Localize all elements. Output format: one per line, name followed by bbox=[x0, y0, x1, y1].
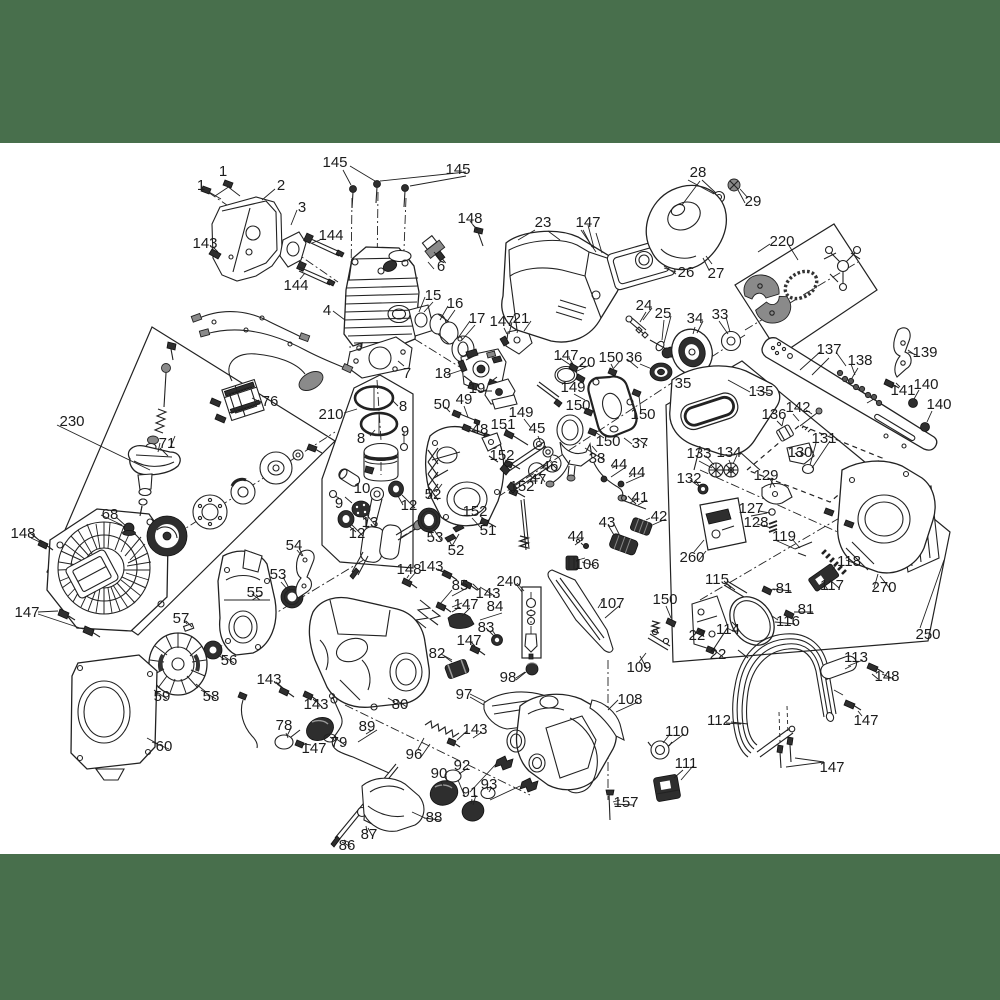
svg-text:25: 25 bbox=[655, 305, 672, 322]
svg-text:150: 150 bbox=[565, 397, 590, 414]
svg-text:2: 2 bbox=[277, 177, 285, 194]
svg-text:147: 147 bbox=[489, 313, 514, 330]
svg-text:118: 118 bbox=[837, 553, 861, 570]
svg-text:111: 111 bbox=[675, 755, 698, 772]
svg-text:58: 58 bbox=[203, 688, 220, 705]
svg-text:140: 140 bbox=[913, 376, 938, 393]
svg-text:136: 136 bbox=[761, 406, 786, 423]
svg-text:35: 35 bbox=[675, 375, 692, 392]
svg-text:54: 54 bbox=[286, 537, 303, 554]
svg-text:116: 116 bbox=[776, 613, 800, 630]
svg-text:20: 20 bbox=[579, 354, 596, 371]
svg-text:18: 18 bbox=[435, 365, 452, 382]
svg-text:88: 88 bbox=[426, 809, 443, 826]
svg-text:93: 93 bbox=[481, 776, 498, 793]
svg-text:144: 144 bbox=[283, 277, 308, 294]
svg-text:44: 44 bbox=[629, 464, 646, 481]
svg-text:53: 53 bbox=[427, 529, 444, 546]
svg-text:145: 145 bbox=[445, 161, 470, 178]
svg-text:149: 149 bbox=[508, 404, 533, 421]
svg-text:83: 83 bbox=[478, 619, 495, 636]
svg-text:9: 9 bbox=[401, 423, 409, 440]
svg-text:152: 152 bbox=[489, 447, 514, 464]
svg-text:152: 152 bbox=[462, 503, 487, 520]
svg-text:87: 87 bbox=[361, 826, 378, 843]
svg-text:113: 113 bbox=[844, 649, 868, 666]
svg-text:81: 81 bbox=[776, 580, 793, 597]
svg-text:79: 79 bbox=[331, 734, 348, 751]
svg-text:28: 28 bbox=[690, 164, 707, 181]
svg-text:82: 82 bbox=[429, 645, 446, 662]
svg-text:260: 260 bbox=[679, 549, 704, 566]
svg-text:76: 76 bbox=[262, 393, 279, 410]
svg-text:128: 128 bbox=[743, 514, 768, 531]
svg-text:98: 98 bbox=[500, 669, 517, 686]
svg-text:80: 80 bbox=[392, 696, 409, 713]
svg-text:143: 143 bbox=[303, 696, 328, 713]
svg-text:44: 44 bbox=[568, 528, 585, 545]
svg-text:29: 29 bbox=[745, 193, 762, 210]
svg-text:16: 16 bbox=[447, 295, 464, 312]
svg-text:150: 150 bbox=[598, 349, 623, 366]
svg-text:270: 270 bbox=[871, 579, 896, 596]
svg-text:8: 8 bbox=[357, 430, 365, 447]
svg-text:142: 142 bbox=[785, 399, 810, 416]
svg-text:38: 38 bbox=[589, 450, 606, 467]
svg-text:220: 220 bbox=[769, 233, 794, 250]
svg-text:140: 140 bbox=[926, 396, 951, 413]
svg-text:147: 147 bbox=[575, 214, 600, 231]
svg-text:23: 23 bbox=[535, 214, 552, 231]
svg-text:22: 22 bbox=[689, 627, 706, 644]
svg-text:90: 90 bbox=[431, 765, 448, 782]
svg-text:17: 17 bbox=[469, 310, 486, 327]
svg-text:81: 81 bbox=[798, 601, 815, 618]
svg-text:45: 45 bbox=[529, 420, 546, 437]
svg-text:144: 144 bbox=[318, 227, 343, 244]
svg-text:131: 131 bbox=[811, 430, 836, 447]
svg-text:106: 106 bbox=[574, 556, 599, 573]
svg-text:8: 8 bbox=[399, 398, 407, 415]
svg-text:97: 97 bbox=[456, 686, 473, 703]
svg-text:133: 133 bbox=[686, 445, 711, 462]
svg-text:37: 37 bbox=[632, 435, 649, 452]
svg-text:24: 24 bbox=[636, 297, 653, 314]
svg-text:60: 60 bbox=[156, 738, 173, 755]
svg-text:114: 114 bbox=[716, 621, 740, 638]
svg-text:91: 91 bbox=[462, 784, 479, 801]
svg-text:52: 52 bbox=[425, 486, 442, 503]
svg-text:12: 12 bbox=[401, 497, 418, 514]
svg-text:56: 56 bbox=[221, 652, 238, 669]
svg-text:68: 68 bbox=[102, 506, 119, 523]
svg-text:6: 6 bbox=[437, 258, 445, 275]
svg-text:143: 143 bbox=[192, 235, 217, 252]
svg-text:3: 3 bbox=[298, 199, 306, 216]
svg-text:150: 150 bbox=[630, 406, 655, 423]
svg-text:12: 12 bbox=[349, 525, 366, 542]
svg-text:135: 135 bbox=[748, 383, 773, 400]
svg-text:132: 132 bbox=[676, 470, 701, 487]
svg-text:110: 110 bbox=[665, 723, 689, 740]
svg-text:43: 43 bbox=[599, 514, 616, 531]
svg-text:147: 147 bbox=[14, 604, 39, 621]
svg-text:148: 148 bbox=[10, 525, 35, 542]
svg-text:107: 107 bbox=[599, 595, 624, 612]
svg-text:143: 143 bbox=[418, 558, 443, 575]
svg-text:41: 41 bbox=[632, 489, 649, 506]
svg-text:51: 51 bbox=[480, 522, 497, 539]
svg-text:89: 89 bbox=[359, 718, 376, 735]
svg-text:1: 1 bbox=[219, 163, 227, 180]
svg-text:150: 150 bbox=[652, 591, 677, 608]
svg-text:134: 134 bbox=[716, 444, 741, 461]
svg-text:148: 148 bbox=[457, 210, 482, 227]
svg-text:78: 78 bbox=[276, 717, 293, 734]
svg-text:117: 117 bbox=[820, 577, 844, 594]
svg-text:7: 7 bbox=[403, 365, 411, 382]
svg-text:71: 71 bbox=[159, 435, 176, 452]
svg-text:119: 119 bbox=[772, 528, 796, 545]
svg-text:49: 49 bbox=[456, 391, 473, 408]
svg-text:21: 21 bbox=[513, 310, 530, 327]
svg-text:138: 138 bbox=[847, 352, 872, 369]
svg-text:4: 4 bbox=[323, 302, 331, 319]
svg-text:137: 137 bbox=[816, 341, 841, 358]
svg-text:147: 147 bbox=[819, 759, 844, 776]
svg-text:96: 96 bbox=[406, 746, 423, 763]
svg-text:250: 250 bbox=[915, 626, 940, 643]
svg-text:108: 108 bbox=[617, 691, 642, 708]
svg-text:10: 10 bbox=[354, 480, 371, 497]
svg-text:143: 143 bbox=[256, 671, 281, 688]
svg-text:149: 149 bbox=[560, 379, 585, 396]
svg-text:150: 150 bbox=[595, 433, 620, 450]
svg-text:157: 157 bbox=[613, 794, 638, 811]
svg-text:148: 148 bbox=[874, 668, 899, 685]
svg-text:141: 141 bbox=[890, 382, 915, 399]
svg-text:147: 147 bbox=[301, 740, 326, 757]
svg-text:59: 59 bbox=[154, 688, 171, 705]
svg-text:27: 27 bbox=[708, 265, 725, 282]
svg-text:92: 92 bbox=[454, 757, 471, 774]
svg-text:53: 53 bbox=[270, 566, 287, 583]
svg-text:44: 44 bbox=[611, 456, 628, 473]
svg-text:147: 147 bbox=[553, 347, 578, 364]
svg-text:129: 129 bbox=[753, 467, 778, 484]
svg-text:130: 130 bbox=[787, 444, 812, 461]
svg-text:48: 48 bbox=[472, 421, 489, 438]
svg-text:42: 42 bbox=[651, 508, 668, 525]
svg-text:26: 26 bbox=[678, 264, 695, 281]
svg-text:36: 36 bbox=[626, 349, 643, 366]
svg-text:112: 112 bbox=[707, 712, 731, 729]
svg-text:9: 9 bbox=[335, 495, 343, 512]
svg-text:210: 210 bbox=[318, 406, 343, 423]
svg-text:55: 55 bbox=[247, 584, 264, 601]
svg-text:47: 47 bbox=[530, 471, 547, 488]
svg-text:50: 50 bbox=[434, 396, 451, 413]
svg-text:22: 22 bbox=[710, 646, 727, 663]
svg-text:57: 57 bbox=[173, 610, 190, 627]
svg-text:85: 85 bbox=[452, 577, 469, 594]
svg-text:34: 34 bbox=[687, 310, 704, 327]
svg-text:143: 143 bbox=[462, 721, 487, 738]
svg-text:230: 230 bbox=[59, 413, 84, 430]
svg-text:52: 52 bbox=[448, 542, 465, 559]
svg-text:115: 115 bbox=[705, 571, 729, 588]
svg-text:147: 147 bbox=[853, 712, 878, 729]
svg-text:15: 15 bbox=[425, 287, 442, 304]
svg-text:145: 145 bbox=[322, 154, 347, 171]
svg-text:84: 84 bbox=[487, 598, 504, 615]
svg-text:86: 86 bbox=[339, 837, 356, 854]
svg-text:109: 109 bbox=[626, 659, 651, 676]
svg-text:1: 1 bbox=[197, 177, 205, 194]
svg-text:139: 139 bbox=[912, 344, 937, 361]
svg-text:33: 33 bbox=[712, 306, 729, 323]
